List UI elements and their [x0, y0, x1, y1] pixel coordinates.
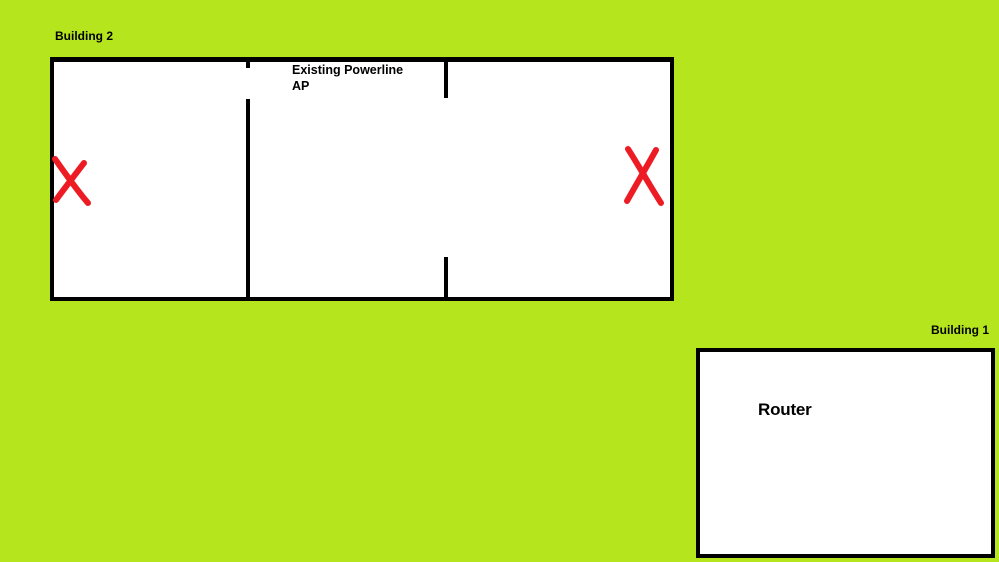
router-label: Router	[758, 400, 812, 420]
building2-left-divider-wall-stub	[246, 61, 250, 68]
building2-label: Building 2	[55, 29, 113, 43]
building2-right-divider-wall-top	[444, 61, 448, 98]
diagram-canvas: Building 2 Existing Powerline AP Buildin…	[0, 0, 999, 562]
existing-powerline-ap-label-line1: Existing Powerline	[292, 62, 403, 78]
building2-left-divider-wall	[246, 99, 250, 301]
building1-label: Building 1	[931, 323, 989, 337]
existing-powerline-ap-label: Existing Powerline AP	[292, 62, 403, 94]
existing-powerline-ap-label-line2: AP	[292, 78, 403, 94]
building2-right-divider-wall-bottom	[444, 257, 448, 301]
building1-outline	[696, 348, 995, 558]
